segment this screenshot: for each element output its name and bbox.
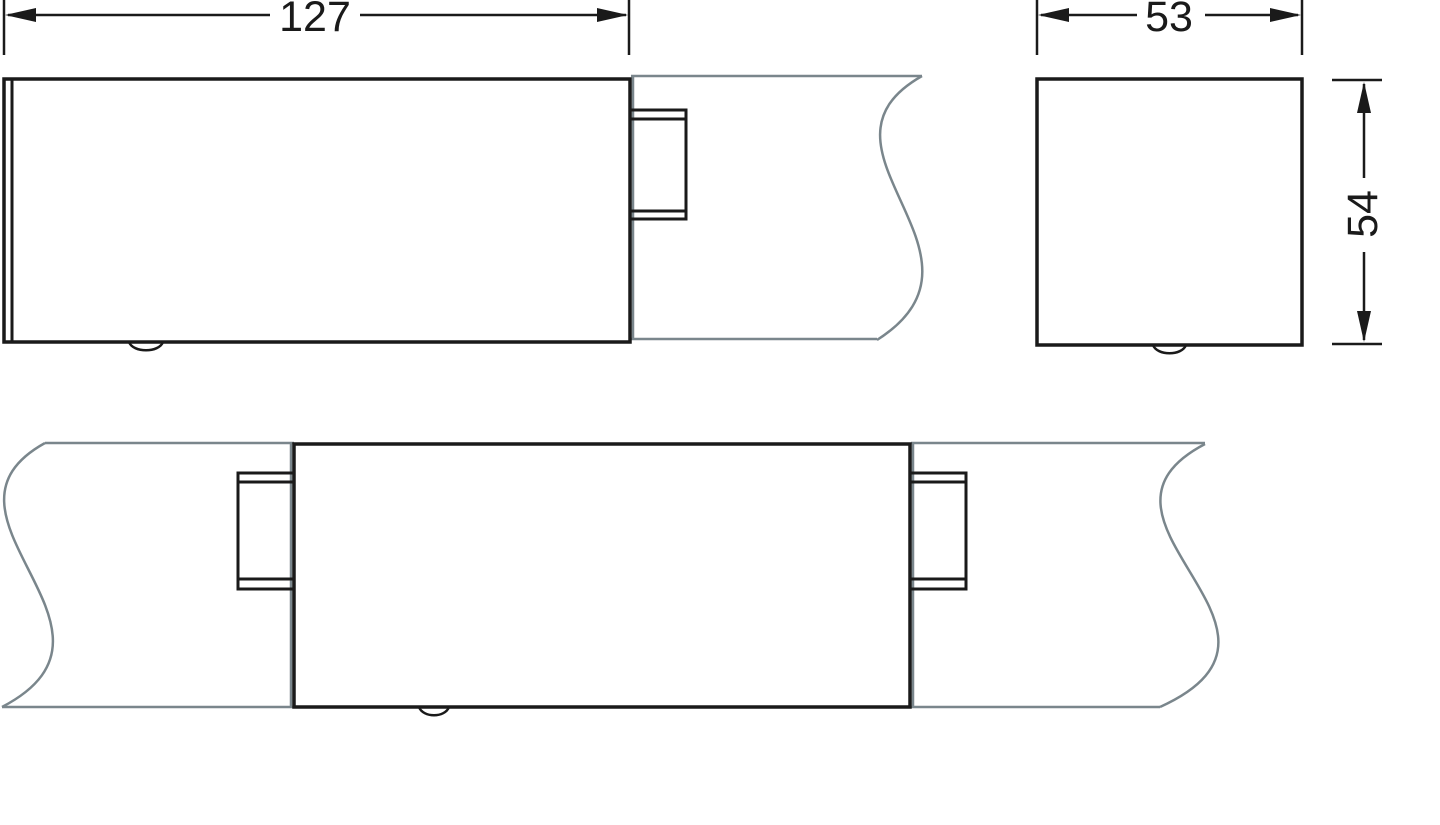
dimension-height: 54 xyxy=(1332,80,1387,344)
coupler-end-face xyxy=(1037,79,1302,345)
dimension-width-label: 53 xyxy=(1145,0,1193,41)
break-line-right xyxy=(1160,444,1218,707)
latch-clip-right xyxy=(910,473,966,589)
arrowhead-down-icon xyxy=(1357,311,1371,342)
break-line xyxy=(877,76,922,340)
coupler-body xyxy=(294,444,910,707)
arrowhead-right-icon xyxy=(1270,8,1301,22)
side-view-part xyxy=(4,79,686,350)
coupler-body xyxy=(4,79,630,342)
dimension-length: 127 xyxy=(4,0,629,55)
plan-view-duct xyxy=(2,443,1218,707)
arrowhead-up-icon xyxy=(1357,82,1371,113)
dimension-length-label: 127 xyxy=(279,0,351,41)
arrowhead-right-icon xyxy=(597,8,628,22)
arrowhead-left-icon xyxy=(1038,8,1069,22)
end-view-part xyxy=(1037,79,1302,353)
dimension-width: 53 xyxy=(1037,0,1302,55)
break-line-left xyxy=(2,443,53,707)
latch-clip-left xyxy=(238,473,294,589)
dimension-height-label: 54 xyxy=(1339,190,1387,238)
arrowhead-left-icon xyxy=(5,8,36,22)
plan-view-part xyxy=(238,444,966,715)
drawing-canvas: 127 53 54 xyxy=(0,0,1440,825)
side-view-duct xyxy=(631,76,922,340)
technical-drawing: 127 53 54 xyxy=(0,0,1440,825)
latch-clip xyxy=(630,110,686,219)
